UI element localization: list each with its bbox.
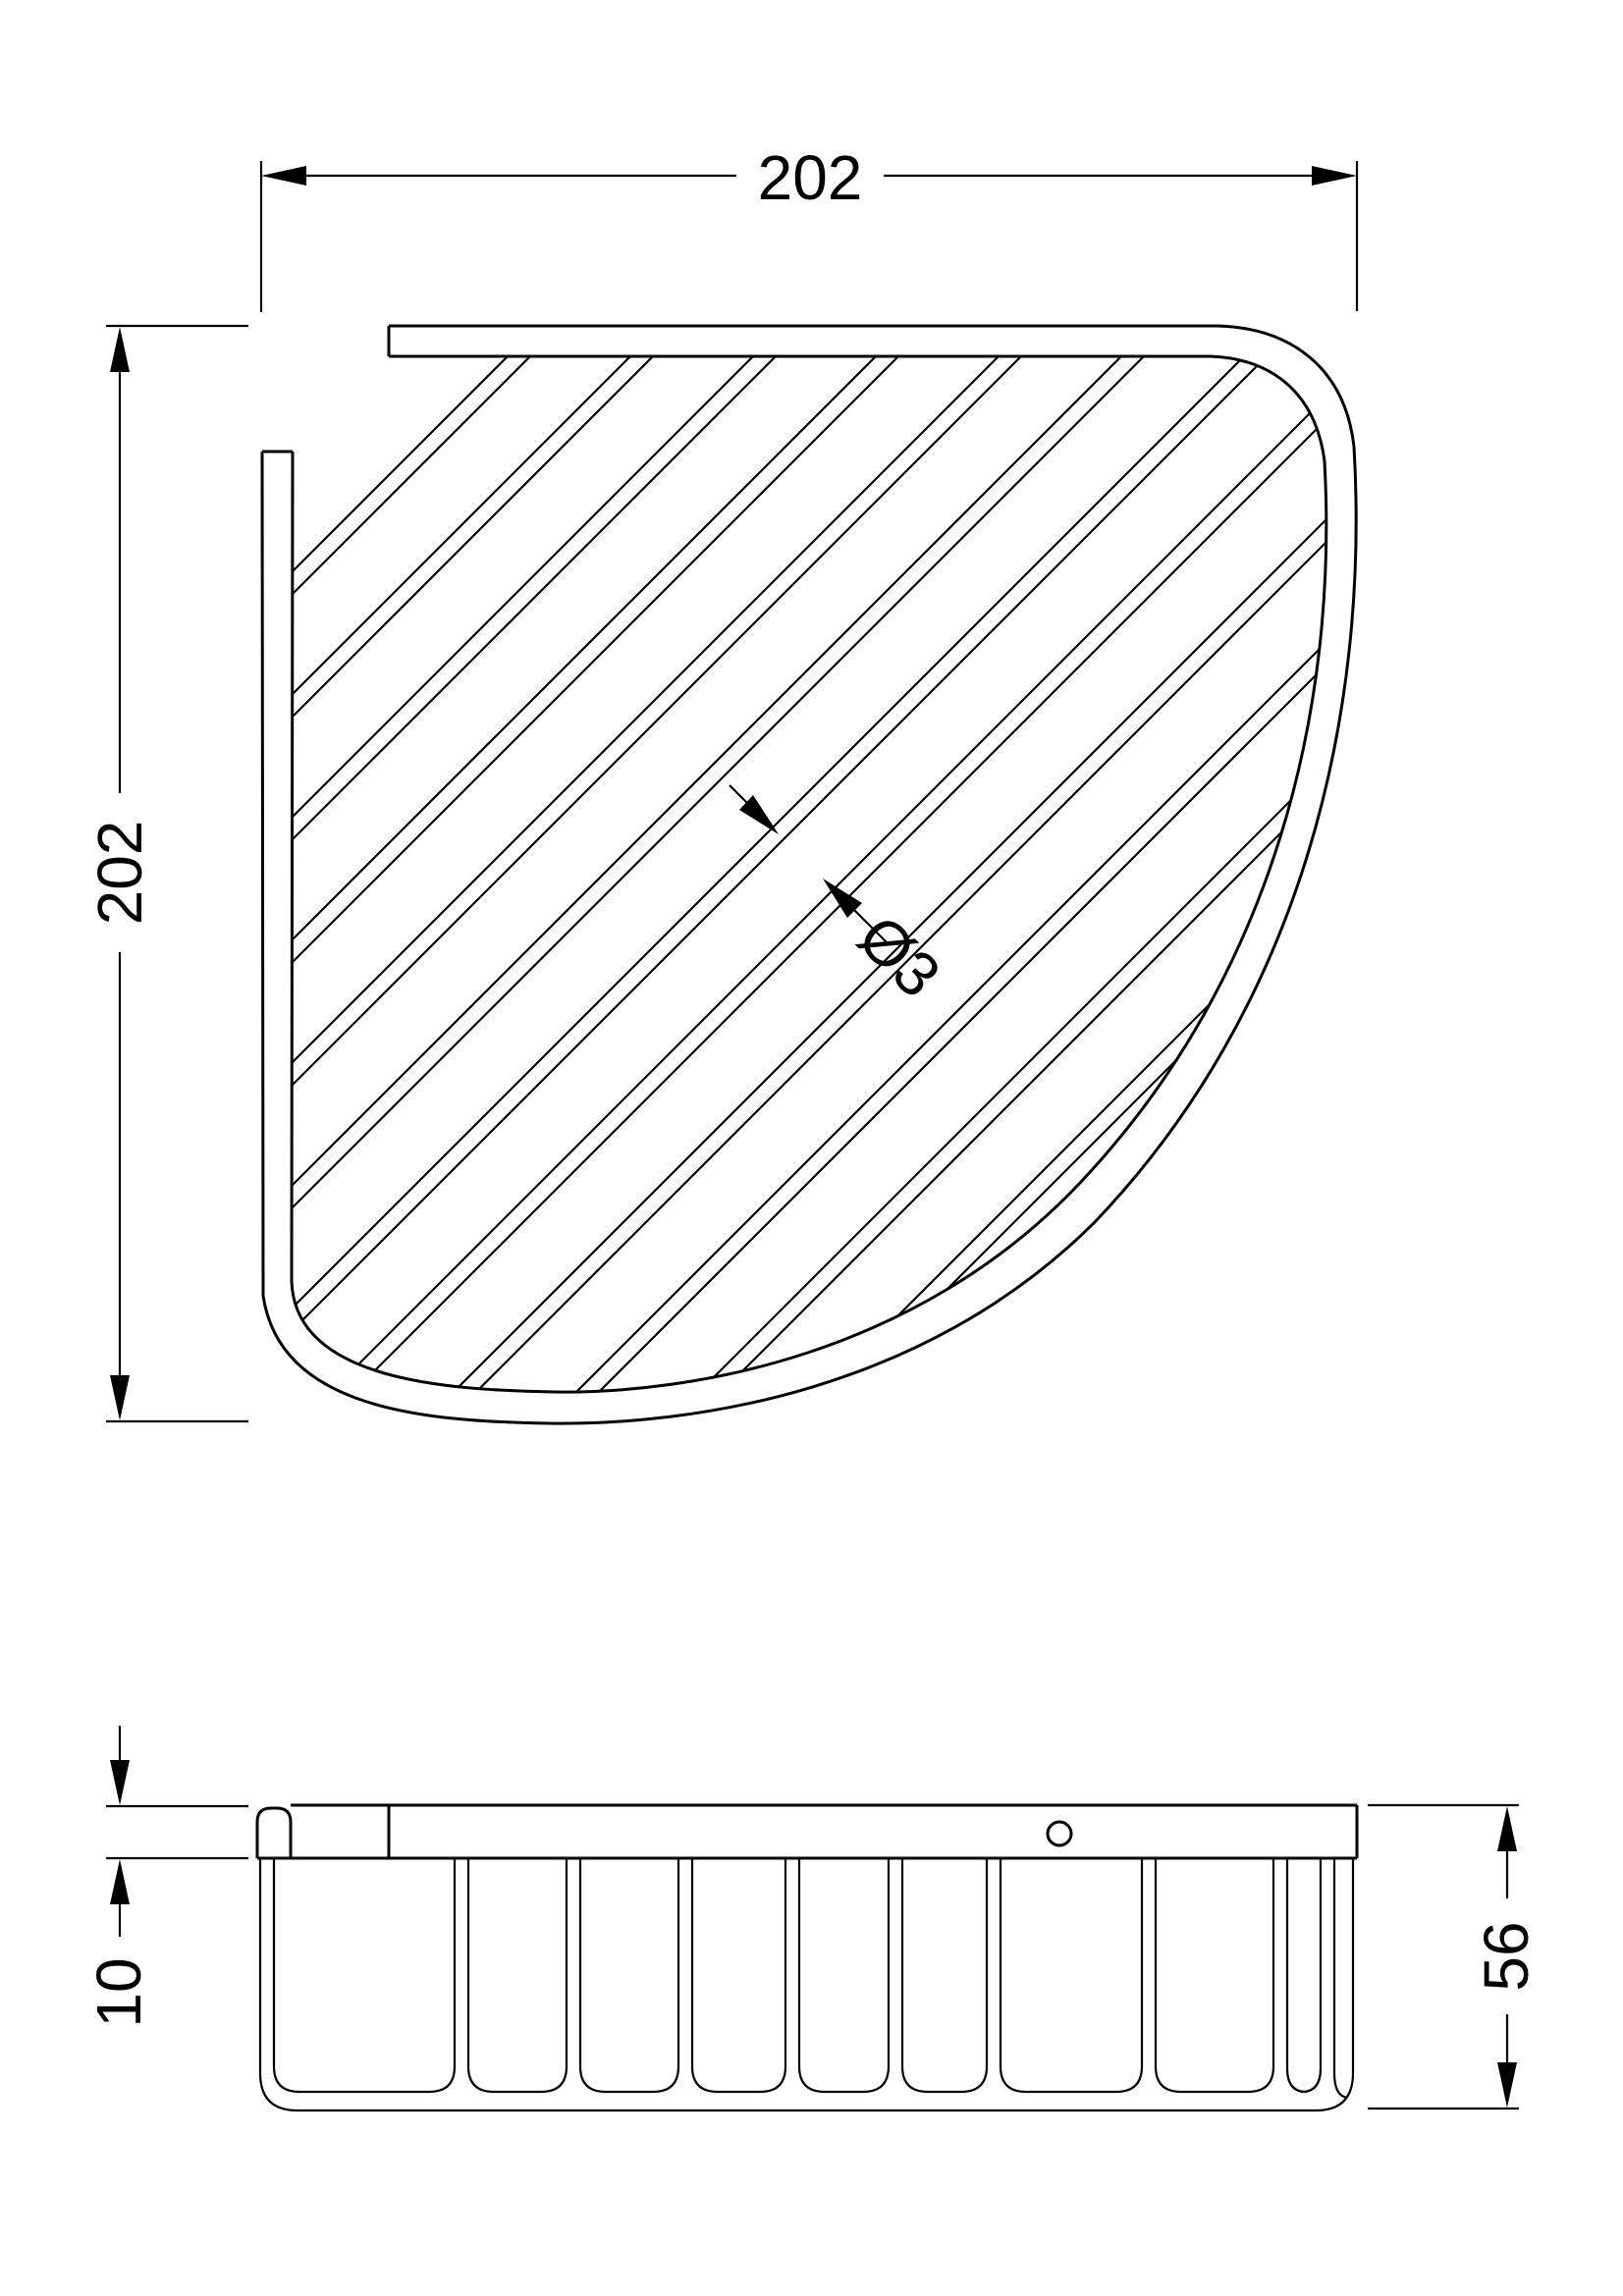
arrowhead-down (1497, 2062, 1517, 2108)
arrowhead-up (1497, 1806, 1517, 1851)
wire-hook-end (1334, 1858, 1347, 2098)
basket-depth-value: 56 (1471, 1921, 1542, 1991)
outer-bottom-loop (260, 1858, 1353, 2110)
rail-thickness-value: 10 (83, 1957, 154, 2027)
arrowhead-up (110, 1859, 130, 1904)
wire-loop-2 (468, 1858, 567, 2092)
dimension-side-height: 202 (84, 326, 248, 1421)
arrowhead-bottom (110, 1375, 130, 1420)
wire-loop-8 (1156, 1858, 1273, 2092)
dimension-wire-diameter: Ø3 (730, 785, 954, 1011)
rim-outer-edge (262, 326, 1356, 1423)
basket-grid-wires (0, 196, 1623, 1472)
dimension-top-width: 202 (261, 142, 1357, 312)
side-height-value: 202 (84, 821, 155, 926)
wire-loop-7 (1001, 1858, 1142, 2092)
top-width-value: 202 (758, 142, 863, 213)
wire-loop-5 (799, 1858, 889, 2092)
wire-loop-6 (902, 1858, 987, 2092)
arrowhead-top (110, 327, 130, 372)
mounting-hole (1048, 1822, 1071, 1845)
grid-wire-lines (0, 196, 1623, 1472)
side-plate-end-cap (257, 1808, 291, 1858)
dimension-basket-depth: 56 (1368, 1805, 1542, 2109)
arrowhead-right (1312, 166, 1357, 186)
wire-loop-3 (580, 1858, 678, 2092)
drawing-sheet: 202 202 Ø3 (0, 0, 1623, 2296)
wire-loop-9 (1287, 1858, 1321, 2092)
leader-line-upper (730, 785, 748, 804)
arrowhead-left (261, 166, 306, 186)
front-view: 10 56 (83, 1726, 1542, 2110)
basket-front-wires (260, 1858, 1353, 2110)
wire-loop-1 (274, 1858, 455, 2092)
top-view: 202 202 Ø3 (0, 142, 1623, 1472)
wire-loop-4 (692, 1858, 785, 2092)
dimension-rail-thickness: 10 (83, 1726, 248, 2028)
rim-inner-edge (292, 356, 1326, 1392)
arrowhead-down (110, 1760, 130, 1805)
corner-basket-technical-drawing: 202 202 Ø3 (0, 0, 1623, 2296)
